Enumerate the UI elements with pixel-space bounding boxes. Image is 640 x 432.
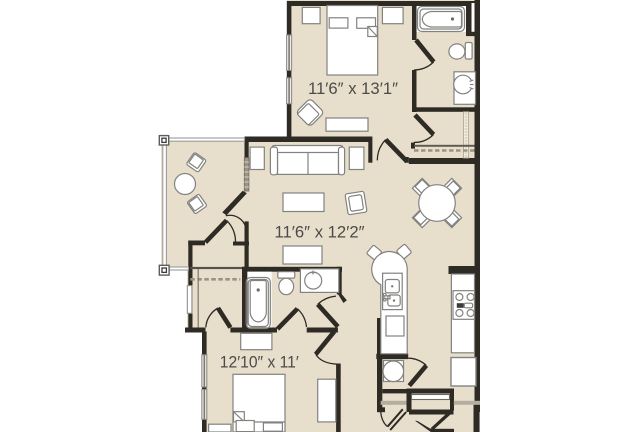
svg-text:11′6″ x 13′1″: 11′6″ x 13′1″ xyxy=(308,79,398,98)
svg-text:11′6″ x 12′2″: 11′6″ x 12′2″ xyxy=(275,223,365,242)
svg-text:12′10″ x 11′: 12′10″ x 11′ xyxy=(220,353,299,372)
